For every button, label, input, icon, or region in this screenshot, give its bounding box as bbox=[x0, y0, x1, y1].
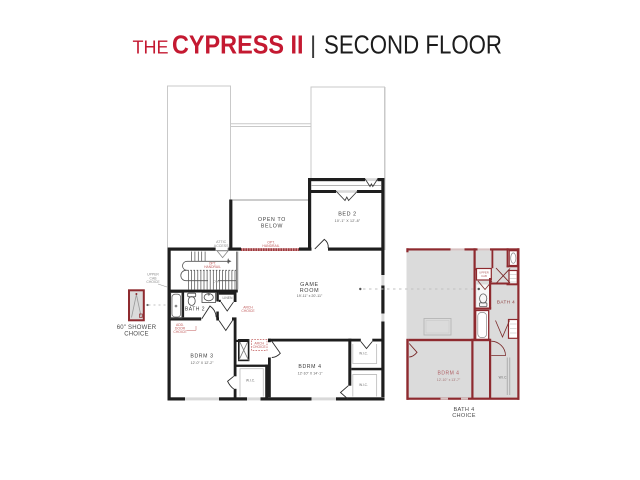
svg-text:ROOM: ROOM bbox=[300, 288, 320, 294]
svg-text:BDRM 4: BDRM 4 bbox=[298, 364, 321, 370]
svg-text:THE: THE bbox=[133, 37, 169, 58]
svg-text:BDRM 3: BDRM 3 bbox=[190, 354, 213, 360]
svg-text:12'-10" X 14'-1": 12'-10" X 14'-1" bbox=[298, 372, 323, 376]
svg-text:ACCESS: ACCESS bbox=[214, 244, 229, 248]
svg-text:CHOICE: CHOICE bbox=[452, 413, 476, 419]
svg-text:W.I.C.: W.I.C. bbox=[359, 352, 368, 356]
svg-text:BED 2: BED 2 bbox=[338, 212, 357, 218]
svg-text:12'-0" X 12'-2": 12'-0" X 12'-2" bbox=[191, 361, 214, 365]
svg-text:OPEN TO: OPEN TO bbox=[258, 217, 286, 223]
svg-text:BELOW: BELOW bbox=[261, 224, 283, 230]
svg-text:CHOICE: CHOICE bbox=[173, 330, 187, 334]
svg-text:W.I.C.: W.I.C. bbox=[359, 383, 368, 387]
svg-text:LINEN: LINEN bbox=[223, 296, 234, 300]
svg-text:CYPRESS II: CYPRESS II bbox=[172, 32, 304, 60]
svg-text:W.I.C.: W.I.C. bbox=[499, 376, 508, 380]
svg-text:BDRM 4: BDRM 4 bbox=[438, 371, 460, 377]
svg-text:W.I.C.: W.I.C. bbox=[246, 378, 255, 382]
svg-text:HANDRAIL: HANDRAIL bbox=[204, 265, 221, 269]
svg-text:CHOICE: CHOICE bbox=[253, 345, 267, 349]
svg-text:CHOICE: CHOICE bbox=[241, 309, 255, 313]
svg-text:60" SHOWER: 60" SHOWER bbox=[117, 325, 157, 331]
svg-text:BATH 2: BATH 2 bbox=[185, 307, 205, 313]
svg-text:SECOND FLOOR: SECOND FLOOR bbox=[324, 30, 502, 60]
svg-text:19'-11" x 20'-11": 19'-11" x 20'-11" bbox=[297, 294, 323, 298]
svg-text:DN: DN bbox=[213, 279, 219, 283]
svg-text:10'-1" X 12'-8": 10'-1" X 12'-8" bbox=[335, 219, 361, 223]
svg-text:CAB: CAB bbox=[481, 274, 487, 278]
svg-text:BATH 4: BATH 4 bbox=[454, 407, 475, 413]
svg-text:CHOICE: CHOICE bbox=[146, 280, 160, 284]
svg-text:12'-10" x 13'-7": 12'-10" x 13'-7" bbox=[437, 378, 461, 382]
svg-text:|: | bbox=[310, 32, 316, 59]
svg-text:CHOICE: CHOICE bbox=[124, 332, 149, 338]
svg-text:HANDRAIL: HANDRAIL bbox=[262, 244, 279, 248]
svg-text:BATH 4: BATH 4 bbox=[497, 299, 515, 304]
